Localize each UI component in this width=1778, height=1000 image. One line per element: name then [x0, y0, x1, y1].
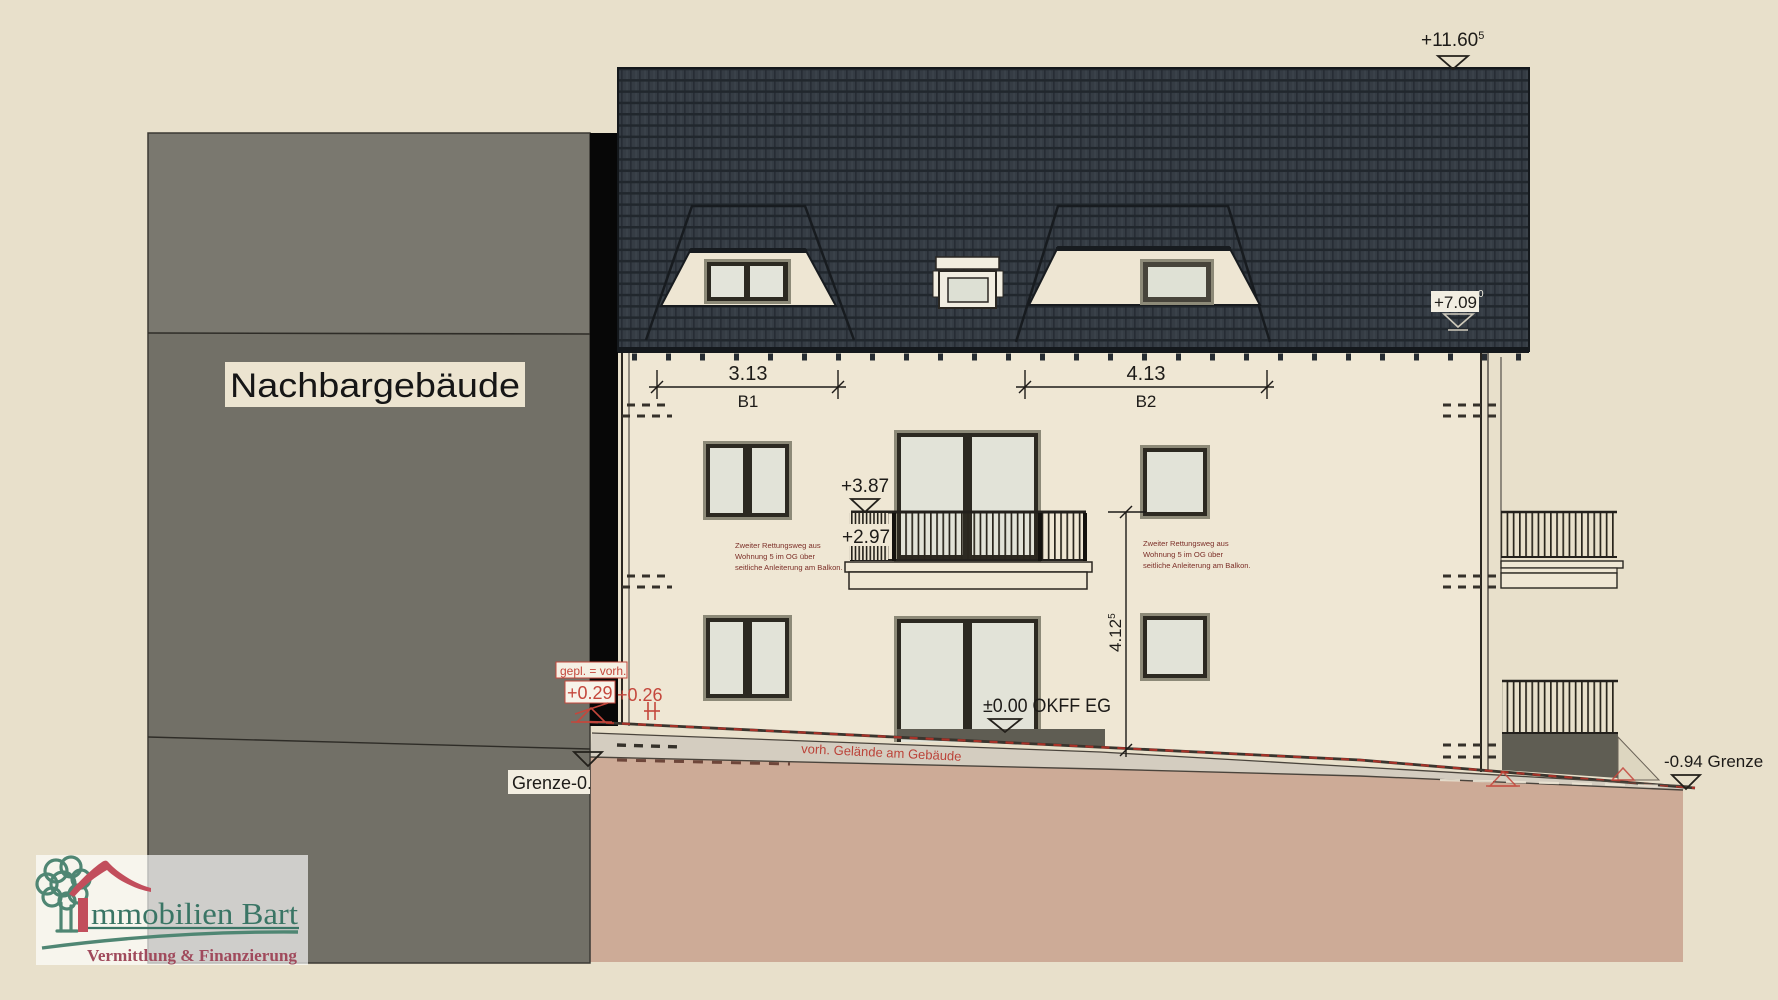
svg-text:+3.87: +3.87 [841, 476, 889, 497]
svg-text:3.13: 3.13 [729, 363, 768, 385]
svg-text:Wohnung 5 im OG über: Wohnung 5 im OG über [735, 552, 816, 561]
svg-text:Grenze-0.: Grenze-0. [512, 773, 592, 793]
svg-text:mmobilien Bart: mmobilien Bart [91, 896, 298, 931]
svg-text:4.13: 4.13 [1127, 363, 1166, 385]
svg-text:B1: B1 [738, 392, 759, 411]
svg-text:Zweiter Rettungsweg aus: Zweiter Rettungsweg aus [1143, 539, 1229, 548]
svg-text:Wohnung 5 im OG über: Wohnung 5 im OG über [1143, 550, 1224, 559]
svg-text:+2.97: +2.97 [842, 527, 890, 548]
svg-text:gepl. = vorh.: gepl. = vorh. [560, 664, 626, 678]
svg-text:±0.00 OKFF EG: ±0.00 OKFF EG [983, 696, 1111, 717]
svg-text:+11.605: +11.605 [1421, 30, 1484, 51]
svg-text:+0.29: +0.29 [567, 683, 613, 703]
svg-text:seitliche Anleiterung am Balko: seitliche Anleiterung am Balkon. [735, 563, 843, 572]
svg-text:B2: B2 [1136, 392, 1157, 411]
svg-text:+7.09: +7.09 [1434, 293, 1477, 312]
svg-text:Vermittlung & Finanzierung: Vermittlung & Finanzierung [87, 946, 298, 965]
svg-text:Zweiter Rettungsweg aus: Zweiter Rettungsweg aus [735, 541, 821, 550]
svg-text:0: 0 [1478, 289, 1484, 300]
svg-text:-0.94 Grenze: -0.94 Grenze [1664, 752, 1763, 771]
svg-text:Nachbargebäude: Nachbargebäude [230, 367, 520, 405]
svg-text:seitliche Anleiterung am Balko: seitliche Anleiterung am Balkon. [1143, 561, 1251, 570]
